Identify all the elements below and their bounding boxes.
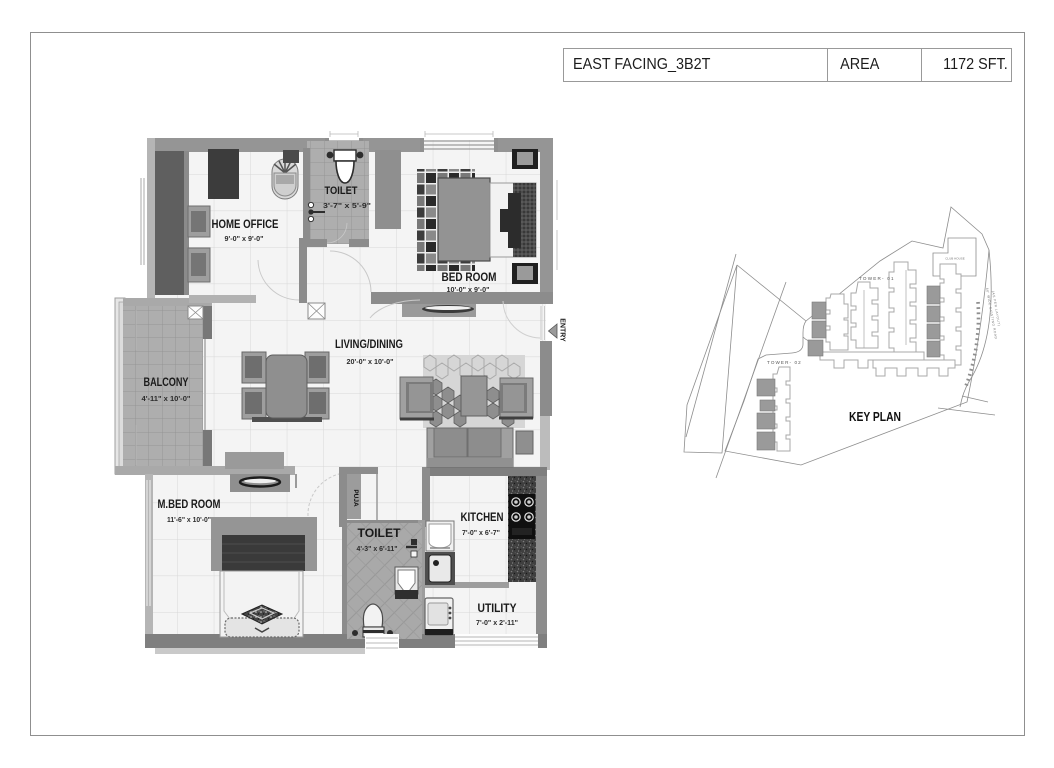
svg-text:HOME OFFICE: HOME OFFICE [212, 219, 279, 231]
svg-text:CLUB HOUSE: CLUB HOUSE [945, 257, 965, 261]
svg-text:ENTRY: ENTRY [559, 318, 566, 342]
svg-text:BALCONY: BALCONY [144, 377, 189, 389]
svg-text:M.BED ROOM: M.BED ROOM [158, 497, 221, 511]
svg-text:KITCHEN: KITCHEN [461, 512, 504, 524]
svg-text:20'-0" x 10'-0": 20'-0" x 10'-0" [347, 357, 394, 366]
svg-text:KEY PLAN: KEY PLAN [849, 410, 901, 424]
svg-text:TOILET: TOILET [325, 185, 358, 197]
svg-text:11'-6" x 10'-0": 11'-6" x 10'-0" [167, 515, 211, 524]
svg-text:LIVING/DINING: LIVING/DINING [335, 339, 403, 351]
svg-text:7'-0" x 6'-7": 7'-0" x 6'-7" [462, 528, 500, 537]
svg-text:9'-0" x 9'-0": 9'-0" x 9'-0" [225, 234, 264, 243]
svg-text:TOWER- 01: TOWER- 01 [859, 276, 895, 281]
svg-text:10'-0" x 9'-0": 10'-0" x 9'-0" [447, 285, 490, 294]
svg-text:BED ROOM: BED ROOM [442, 272, 497, 284]
svg-text:PUJA: PUJA [352, 489, 359, 507]
svg-text:TOWER- 02: TOWER- 02 [767, 360, 802, 365]
svg-text:UTILITY: UTILITY [478, 603, 517, 615]
svg-text:4'-11" x 10'-0": 4'-11" x 10'-0" [142, 394, 191, 403]
svg-text:4'-3" x 6'-11": 4'-3" x 6'-11" [357, 544, 398, 553]
svg-text:TOILET: TOILET [358, 528, 401, 540]
svg-text:7'-0" x 2'-11": 7'-0" x 2'-11" [476, 618, 518, 627]
svg-text:3'-7" x 5'-9": 3'-7" x 5'-9" [323, 201, 372, 210]
